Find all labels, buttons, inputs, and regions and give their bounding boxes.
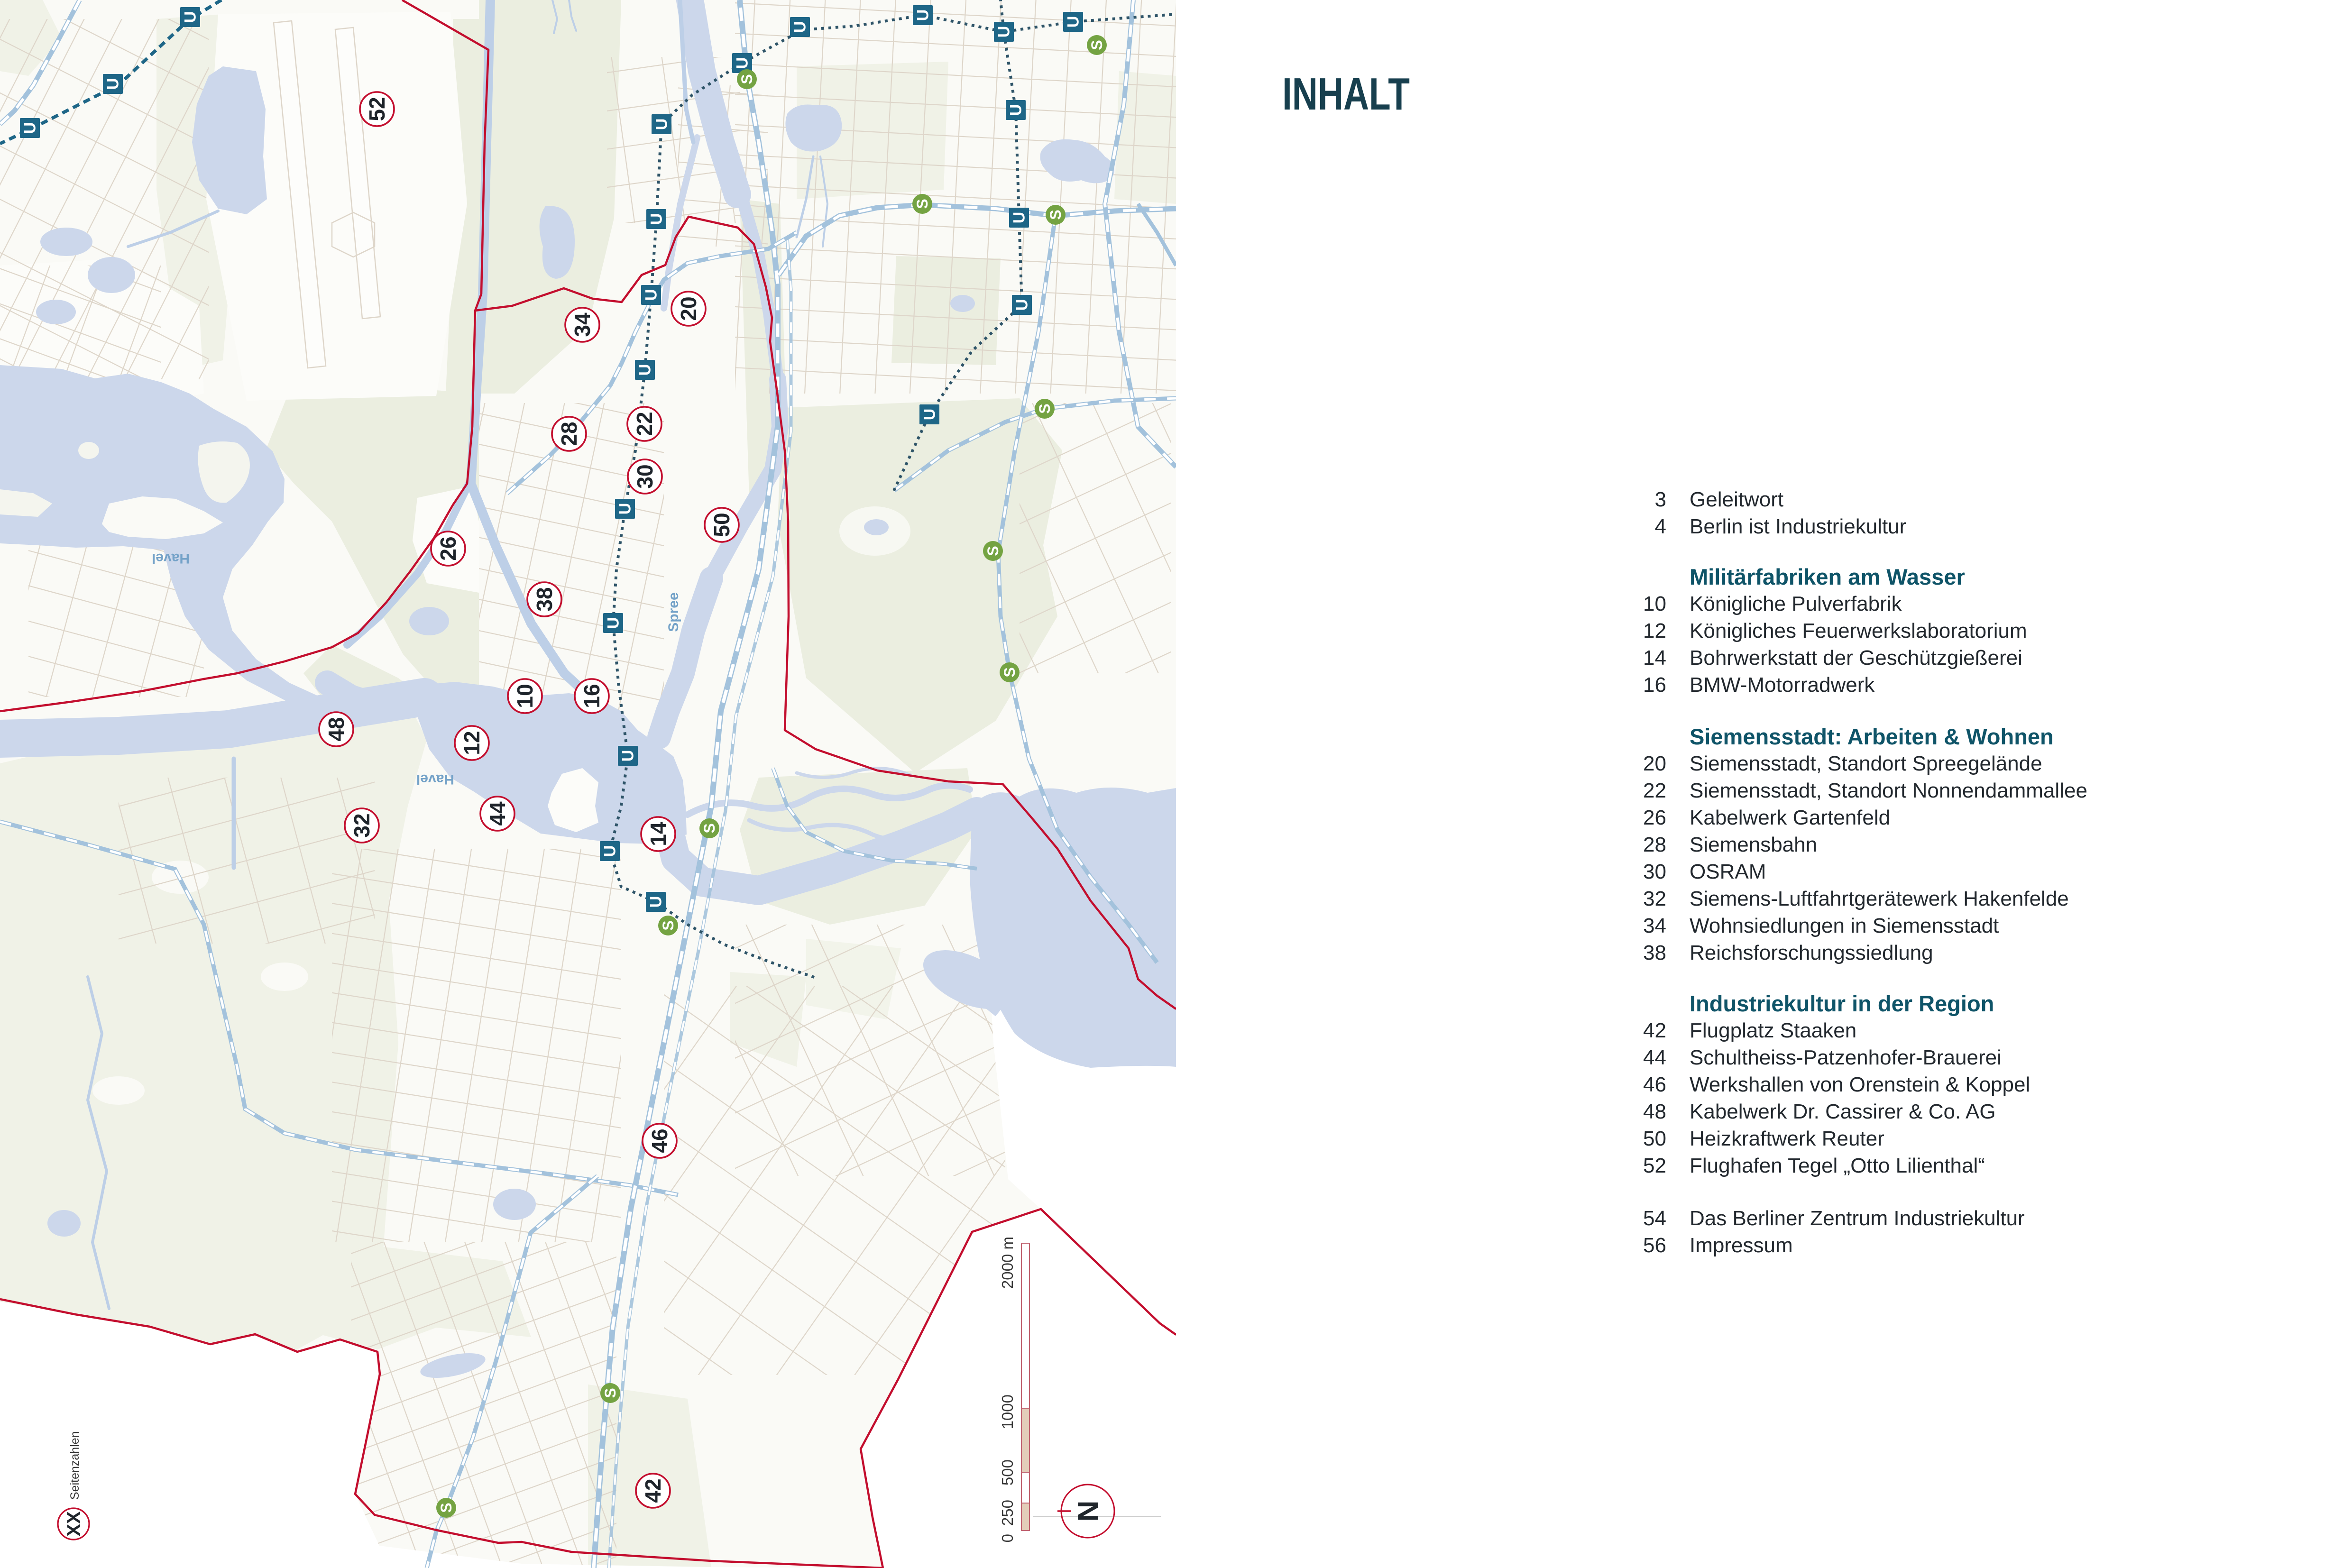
svg-text:S: S [602, 1388, 619, 1398]
svg-text:U: U [1013, 299, 1031, 311]
svg-text:32: 32 [349, 813, 374, 837]
svg-text:1000: 1000 [999, 1394, 1016, 1429]
svg-text:42: 42 [641, 1478, 665, 1503]
svg-text:S: S [914, 199, 931, 209]
svg-text:U: U [648, 213, 666, 225]
svg-text:2000 m: 2000 m [999, 1237, 1016, 1289]
svg-text:12: 12 [459, 731, 484, 755]
svg-text:26: 26 [436, 536, 460, 560]
svg-text:U: U [995, 26, 1013, 38]
svg-text:U: U [21, 122, 39, 134]
svg-text:N: N [1072, 1501, 1105, 1522]
svg-text:50: 50 [709, 513, 734, 537]
svg-text:S: S [660, 920, 677, 930]
svg-text:U: U [1011, 212, 1029, 224]
svg-text:22: 22 [632, 412, 657, 436]
svg-text:34: 34 [570, 312, 595, 337]
svg-text:U: U [647, 896, 665, 908]
svg-text:U: U [1065, 16, 1083, 28]
svg-text:52: 52 [365, 97, 389, 121]
svg-text:16: 16 [579, 684, 604, 708]
svg-text:U: U [636, 364, 654, 376]
svg-text:S: S [984, 546, 1001, 556]
svg-text:250: 250 [999, 1500, 1016, 1526]
svg-text:U: U [921, 409, 939, 421]
svg-text:U: U [653, 119, 671, 130]
svg-text:S: S [1001, 667, 1018, 677]
svg-text:S: S [1088, 40, 1105, 50]
svg-text:Seitenzahlen: Seitenzahlen [68, 1431, 82, 1500]
svg-text:Havel: Havel [152, 550, 190, 566]
svg-text:U: U [1007, 104, 1025, 116]
svg-text:U: U [619, 750, 637, 762]
svg-text:U: U [616, 503, 634, 515]
svg-text:44: 44 [485, 801, 510, 826]
svg-text:S: S [438, 1503, 455, 1513]
svg-text:S: S [701, 823, 718, 833]
svg-text:14: 14 [646, 822, 671, 846]
svg-text:S: S [738, 74, 755, 84]
svg-text:U: U [605, 617, 623, 629]
svg-text:46: 46 [647, 1128, 672, 1153]
svg-text:10: 10 [513, 684, 537, 708]
svg-text:U: U [734, 57, 752, 69]
svg-text:U: U [601, 845, 619, 857]
svg-text:S: S [1036, 403, 1053, 413]
svg-text:30: 30 [633, 464, 657, 488]
svg-text:28: 28 [557, 422, 581, 446]
svg-text:500: 500 [999, 1459, 1016, 1485]
svg-text:U: U [791, 21, 809, 33]
svg-text:38: 38 [532, 587, 557, 611]
svg-text:S: S [1047, 210, 1064, 220]
svg-text:U: U [643, 289, 661, 301]
svg-text:XX: XX [64, 1511, 84, 1537]
svg-text:20: 20 [676, 296, 701, 321]
svg-text:0: 0 [999, 1534, 1016, 1542]
svg-text:U: U [104, 78, 122, 90]
svg-text:Havel: Havel [416, 771, 454, 787]
svg-text:U: U [914, 9, 932, 21]
svg-text:U: U [182, 11, 200, 23]
svg-text:48: 48 [324, 717, 349, 741]
svg-text:Spree: Spree [666, 592, 681, 632]
